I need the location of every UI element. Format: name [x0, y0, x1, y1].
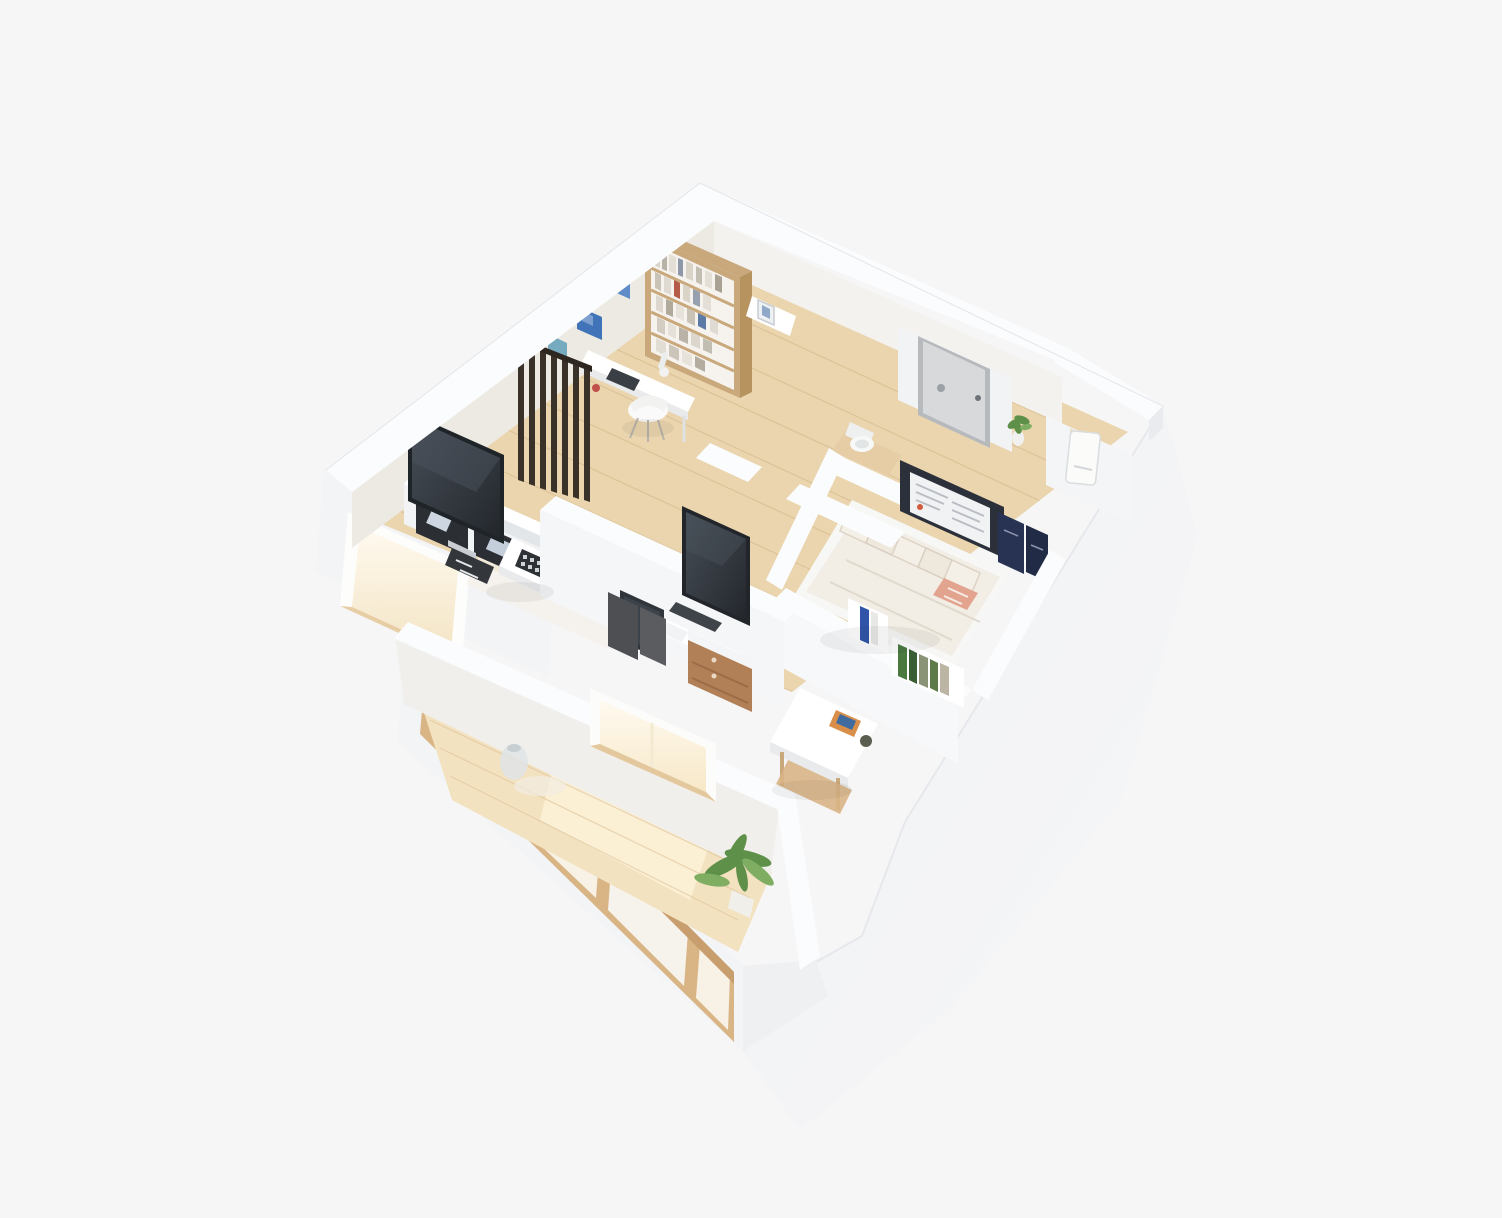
door-handle: [975, 395, 981, 401]
book-tan: [940, 663, 949, 696]
cup: [860, 735, 872, 747]
toilet-seat: [855, 440, 869, 449]
door-lock: [937, 384, 945, 392]
drawer-knob: [712, 658, 717, 663]
balcony-rug: [514, 776, 566, 796]
screen-red-dot: [917, 504, 923, 510]
drawer-knob: [712, 674, 717, 679]
book-green: [930, 659, 938, 692]
floorplan-render: [0, 0, 1502, 1218]
red-mug: [592, 384, 600, 392]
book-green-dark: [909, 649, 917, 684]
book-olive: [919, 654, 928, 688]
apartment-3d-floorplan-screenshot: [0, 0, 1502, 1218]
vase-mouth: [507, 744, 521, 752]
water-heater: [1065, 431, 1100, 486]
bookshelf-side: [740, 271, 752, 398]
